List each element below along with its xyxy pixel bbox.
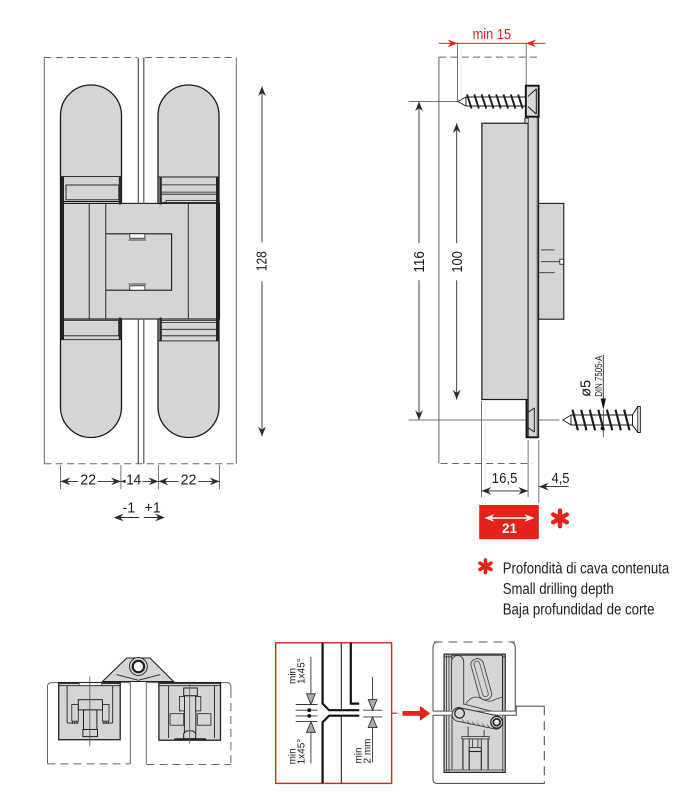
- svg-text:14: 14: [126, 473, 141, 489]
- svg-text:ø5: ø5: [579, 380, 595, 397]
- svg-text:1x45°: 1x45°: [296, 739, 307, 765]
- svg-text:Small drilling depth: Small drilling depth: [503, 581, 614, 598]
- svg-text:100: 100: [449, 251, 466, 272]
- svg-text:4,5: 4,5: [552, 471, 570, 487]
- svg-text:116: 116: [411, 251, 428, 272]
- svg-text:Profondità di cava contenuta: Profondità di cava contenuta: [503, 561, 670, 578]
- svg-text:16,5: 16,5: [492, 471, 518, 487]
- svg-text:2 mm: 2 mm: [362, 739, 373, 764]
- svg-text:Baja profundidad de corte: Baja profundidad de corte: [503, 601, 655, 618]
- svg-text:22: 22: [181, 473, 197, 489]
- svg-text:21: 21: [502, 521, 518, 536]
- svg-text:+1: +1: [145, 501, 161, 517]
- svg-text:min 15: min 15: [473, 27, 512, 43]
- svg-text:-1: -1: [123, 501, 136, 517]
- svg-text:22: 22: [80, 473, 96, 489]
- svg-text:1x45°: 1x45°: [296, 658, 307, 684]
- svg-text:128: 128: [253, 251, 270, 271]
- svg-text:DIN 7505-A: DIN 7505-A: [594, 355, 605, 397]
